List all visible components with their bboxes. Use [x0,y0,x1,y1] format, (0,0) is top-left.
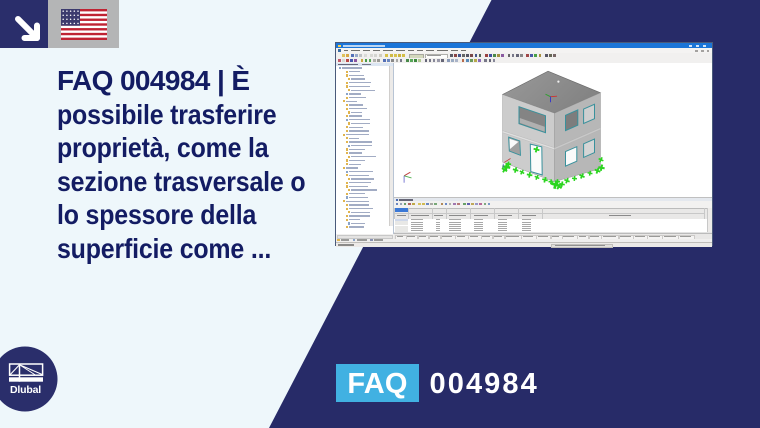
svg-text:Dlubal: Dlubal [10,384,41,396]
